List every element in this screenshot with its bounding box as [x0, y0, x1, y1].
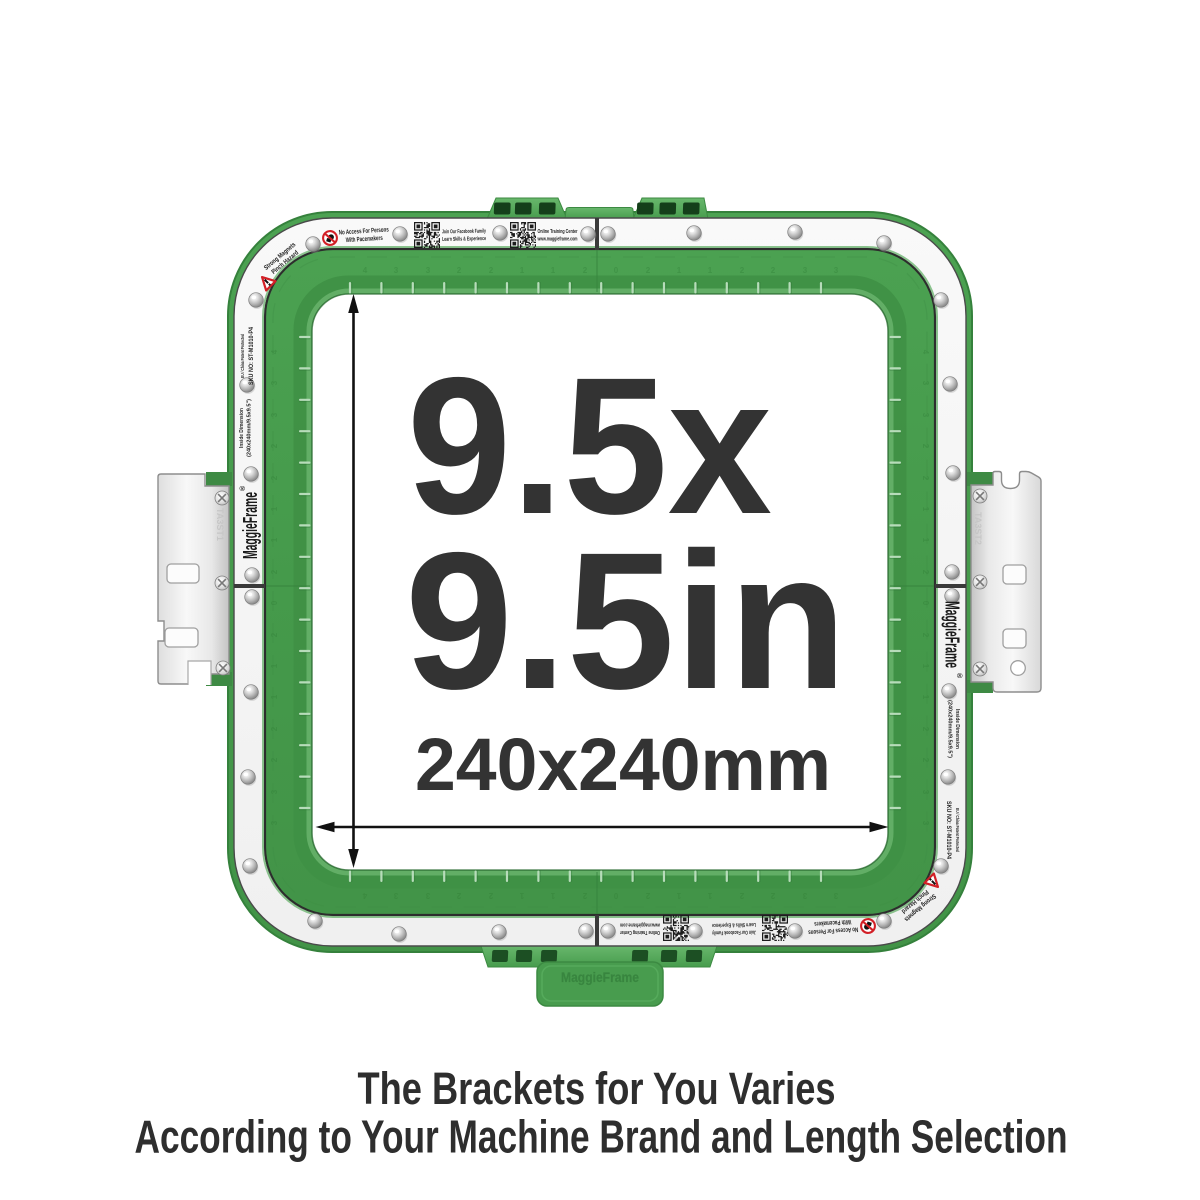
svg-text:3: 3 [803, 266, 808, 275]
svg-text:3: 3 [394, 266, 399, 275]
svg-text:3: 3 [270, 789, 279, 794]
svg-text:2: 2 [921, 476, 930, 481]
svg-text:0: 0 [614, 266, 619, 275]
svg-text:2: 2 [456, 891, 461, 900]
svg-text:MaggieFrame: MaggieFrame [561, 970, 639, 985]
svg-text:Join Our Facebook Family: Join Our Facebook Family [711, 929, 756, 936]
svg-text:3: 3 [270, 820, 279, 825]
svg-text:®: ® [239, 485, 247, 491]
svg-text:4: 4 [362, 891, 367, 900]
svg-text:9.5in: 9.5in [405, 512, 847, 730]
svg-text:2: 2 [771, 266, 776, 275]
svg-text:2: 2 [270, 569, 279, 574]
svg-text:1: 1 [921, 664, 930, 669]
svg-text:www.maggieframe.com: www.maggieframe.com [537, 237, 578, 243]
svg-text:3: 3 [425, 891, 430, 900]
svg-text:2: 2 [457, 266, 462, 275]
svg-text:2: 2 [739, 891, 744, 900]
svg-text:2: 2 [270, 475, 279, 480]
svg-text:3: 3 [270, 412, 279, 417]
svg-text:2: 2 [740, 266, 745, 275]
svg-text:The Brackets for You Varies: The Brackets for You Varies [358, 1063, 836, 1114]
svg-text:3: 3 [921, 413, 930, 418]
svg-text:1: 1 [677, 266, 682, 275]
svg-text:®: ® [955, 673, 963, 679]
svg-text:2: 2 [583, 266, 588, 275]
svg-text:4: 4 [921, 350, 930, 355]
svg-text:1: 1 [551, 266, 556, 275]
svg-text:Join Our Facebook Family: Join Our Facebook Family [442, 229, 487, 236]
svg-text:3: 3 [834, 266, 839, 275]
svg-text:2: 2 [489, 266, 494, 275]
svg-text:2: 2 [270, 726, 279, 731]
svg-text:Online Training Center: Online Training Center [619, 929, 660, 935]
svg-text:3: 3 [393, 891, 398, 900]
svg-text:1: 1 [270, 537, 279, 542]
svg-text:4: 4 [270, 349, 279, 354]
svg-text:0: 0 [613, 891, 618, 900]
svg-text:Learn Skills & Experience: Learn Skills & Experience [442, 236, 486, 243]
svg-text:4: 4 [363, 266, 368, 275]
svg-text:3: 3 [921, 790, 930, 795]
svg-text:SKU NO: ST-M1010-P4: SKU NO: ST-M1010-P4 [248, 327, 255, 385]
svg-text:3: 3 [426, 266, 431, 275]
svg-text:1: 1 [270, 694, 279, 699]
svg-text:According to Your Machine Bran: According to Your Machine Brand and Leng… [135, 1111, 1068, 1163]
svg-text:2: 2 [488, 891, 493, 900]
svg-text:3: 3 [921, 381, 930, 386]
svg-text:1: 1 [676, 891, 681, 900]
svg-text:2: 2 [582, 891, 587, 900]
svg-text:1: 1 [921, 538, 930, 543]
svg-text:TA3ST2: TA3ST2 [973, 512, 983, 545]
svg-text:Inside Dimension: Inside Dimension [239, 408, 245, 448]
svg-text:1: 1 [270, 506, 279, 511]
svg-text:1: 1 [921, 695, 930, 700]
svg-text:1: 1 [921, 507, 930, 512]
svg-text:Inside Dimension: Inside Dimension [954, 709, 960, 749]
svg-text:2: 2 [646, 266, 651, 275]
svg-text:EU / China Patent Protected: EU / China Patent Protected [240, 334, 245, 378]
svg-text:1: 1 [708, 266, 713, 275]
svg-text:1: 1 [520, 266, 525, 275]
svg-text:MaggieFrame: MaggieFrame [941, 601, 963, 668]
svg-text:3: 3 [802, 891, 807, 900]
svg-text:(240x240mm/9.5x9.5"): (240x240mm/9.5x9.5") [247, 399, 253, 457]
svg-text:2: 2 [270, 443, 279, 448]
svg-text:EU / China Patent Protected: EU / China Patent Protected [955, 808, 960, 852]
svg-text:(240x240mm/9.5x9.5"): (240x240mm/9.5x9.5") [947, 700, 953, 758]
svg-text:MaggieFrame: MaggieFrame [240, 492, 262, 559]
svg-text:2: 2 [921, 727, 930, 732]
svg-text:2: 2 [921, 444, 930, 449]
svg-text:www.maggieframe.com: www.maggieframe.com [620, 922, 661, 928]
svg-text:2: 2 [270, 757, 279, 762]
svg-text:2: 2 [645, 891, 650, 900]
svg-text:0: 0 [921, 601, 930, 606]
svg-text:1: 1 [707, 891, 712, 900]
svg-text:3: 3 [270, 380, 279, 385]
svg-text:2: 2 [270, 632, 279, 637]
svg-text:2: 2 [921, 570, 930, 575]
svg-text:TA3ST1: TA3ST1 [215, 508, 225, 541]
svg-text:1: 1 [550, 891, 555, 900]
svg-text:2: 2 [921, 758, 930, 763]
svg-text:0: 0 [270, 600, 279, 605]
svg-text:1: 1 [270, 663, 279, 668]
svg-text:3: 3 [921, 821, 930, 826]
svg-text:3: 3 [833, 891, 838, 900]
svg-text:Online Training Center: Online Training Center [538, 229, 579, 235]
svg-text:SKU NO: ST-M1010-P4: SKU NO: ST-M1010-P4 [945, 801, 952, 859]
svg-text:1: 1 [519, 891, 524, 900]
svg-text:2: 2 [770, 891, 775, 900]
svg-text:240x240mm: 240x240mm [415, 723, 831, 806]
svg-text:Learn Skills & Experience: Learn Skills & Experience [712, 921, 756, 928]
svg-text:2: 2 [921, 633, 930, 638]
